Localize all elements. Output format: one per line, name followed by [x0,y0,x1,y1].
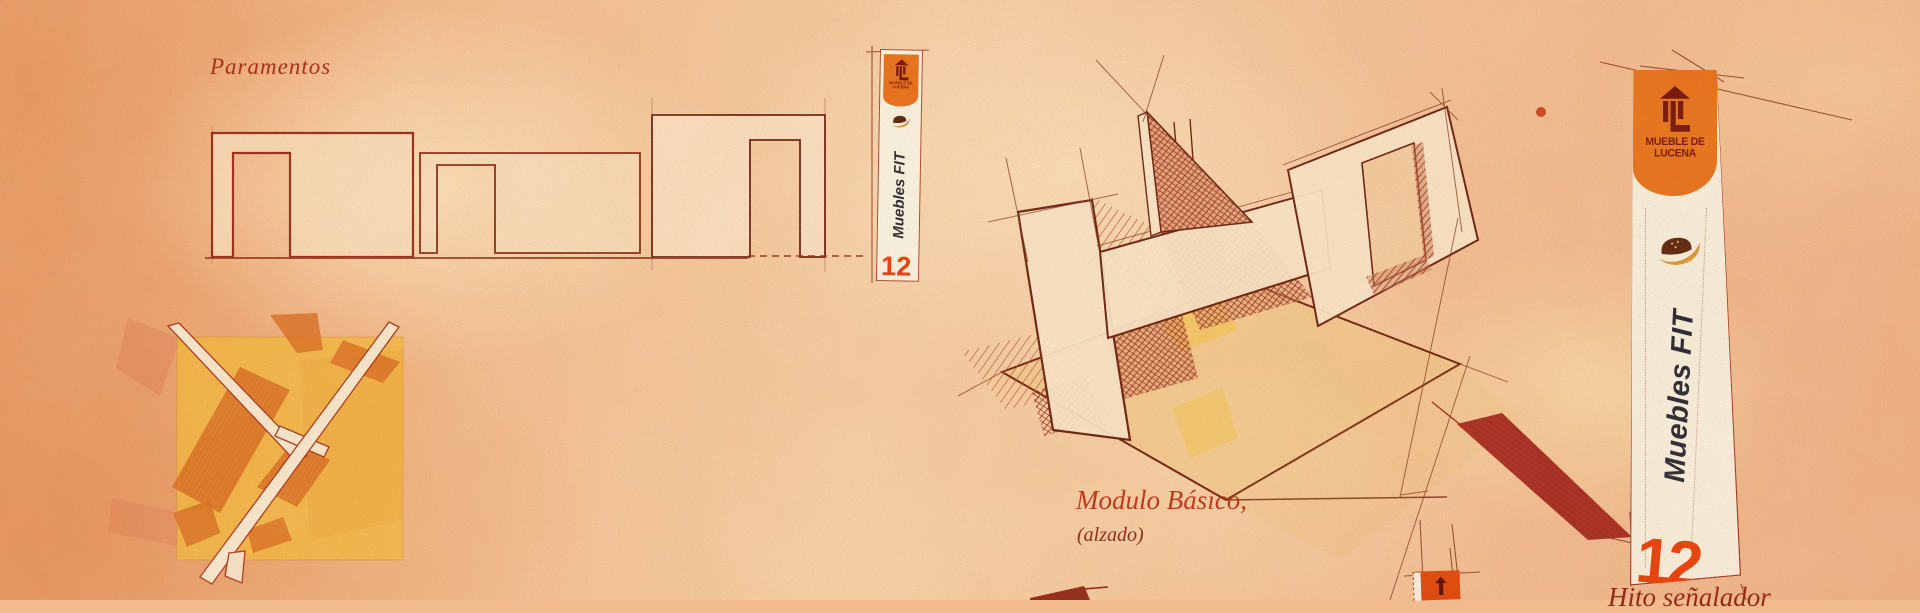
banner-large-logo-text: MUEBLE DE LUCENA [1645,136,1704,159]
walls-elevation-sketch [205,98,868,272]
plan-sketch [108,313,403,584]
red-dot [1536,107,1546,117]
armchair-swoosh-icon [891,114,911,131]
banner-small: MUEBLE DE LUCENA Muebles FIT 12 [876,49,923,282]
banner-bottom-header [1421,570,1461,600]
banner-small-brand: Muebles FIT [878,148,921,243]
wall-3 [652,115,825,257]
tower-arrow-icon [1654,86,1696,134]
brand-text: Muebles FIT [1659,309,1701,484]
banner-small-header: MUEBLE DE LUCENA [883,54,919,107]
armchair-swoosh-icon [1656,230,1702,278]
banner-small-logo-text: MUEBLE DE LUCENA [889,81,913,90]
brand-text: Muebles FIT [890,152,909,239]
tower-arrow-icon [892,59,910,81]
banner-large-brand: Muebles FIT [1630,288,1730,504]
banner-small-number: 12 [881,253,912,281]
caption-modulo-basico: Modulo Básico, [1076,485,1247,516]
arrow-tower-icon [1433,575,1448,597]
design-board: { "captions": { "paramentos": "Paramento… [0,0,1920,600]
caption-hito-senalador: Hito señalador [1608,582,1771,613]
banner-bottom-cut [1413,570,1461,601]
caption-paramentos: Paramentos [210,54,331,80]
wall-1 [212,133,413,257]
wall-2 [420,153,640,253]
caption-alzado: (alzado) [1077,524,1144,547]
module-3d-sketch [958,55,1546,600]
banner-large-header: MUEBLE DE LUCENA [1633,70,1717,196]
bottom-left-wedge [1030,586,1108,600]
